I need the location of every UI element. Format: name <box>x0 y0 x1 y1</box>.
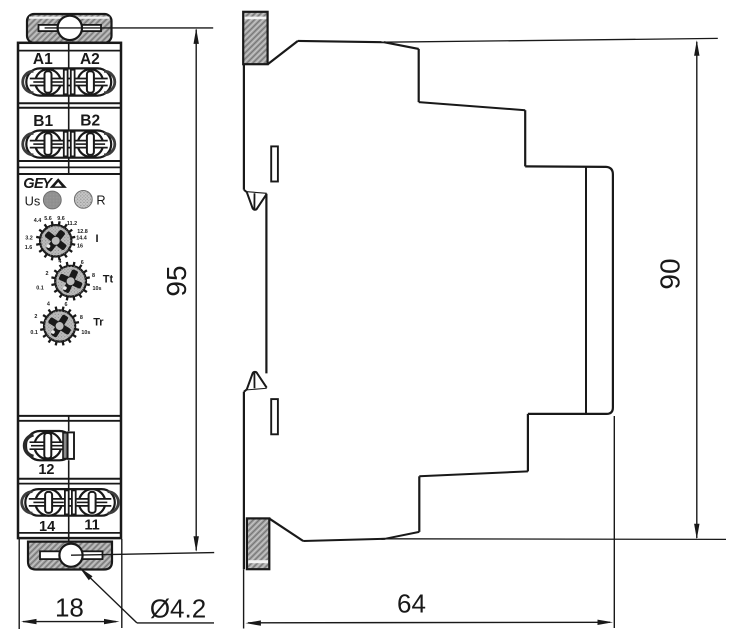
svg-text:9.6: 9.6 <box>57 216 65 222</box>
svg-text:10s: 10s <box>81 330 90 336</box>
svg-text:Y: Y <box>42 176 53 192</box>
svg-text:8: 8 <box>92 273 95 279</box>
svg-text:10s: 10s <box>93 286 102 292</box>
svg-text:12: 12 <box>38 462 54 478</box>
svg-text:R: R <box>96 193 105 208</box>
svg-text:0.1: 0.1 <box>30 330 38 336</box>
svg-text:14.4: 14.4 <box>76 236 87 242</box>
svg-text:5.6: 5.6 <box>44 216 52 222</box>
svg-text:A1: A1 <box>33 51 53 68</box>
svg-text:14: 14 <box>39 519 55 535</box>
svg-text:A2: A2 <box>80 51 100 68</box>
svg-text:6: 6 <box>65 302 68 308</box>
svg-text:B2: B2 <box>80 113 100 130</box>
svg-text:4.4: 4.4 <box>34 218 42 224</box>
svg-text:2: 2 <box>34 314 37 320</box>
svg-text:Tr: Tr <box>93 316 104 328</box>
svg-text:90: 90 <box>655 258 686 289</box>
svg-text:12.8: 12.8 <box>77 229 88 235</box>
svg-text:11: 11 <box>84 518 99 534</box>
svg-text:Ø4.2: Ø4.2 <box>150 594 206 624</box>
svg-text:64: 64 <box>397 589 426 619</box>
svg-text:4: 4 <box>47 301 50 307</box>
svg-text:16: 16 <box>77 244 83 250</box>
svg-text:0.1: 0.1 <box>36 286 44 292</box>
svg-text:Tt: Tt <box>103 274 114 286</box>
svg-text:8: 8 <box>80 315 83 321</box>
svg-text:95: 95 <box>161 265 192 296</box>
svg-text:4: 4 <box>59 259 62 265</box>
svg-text:Us: Us <box>25 193 41 208</box>
svg-text:11.2: 11.2 <box>67 221 77 227</box>
svg-text:1.6: 1.6 <box>25 245 33 251</box>
svg-text:18: 18 <box>55 593 84 623</box>
svg-text:6: 6 <box>81 260 84 266</box>
svg-text:2: 2 <box>46 271 49 277</box>
svg-text:I: I <box>95 233 98 245</box>
svg-text:3.2: 3.2 <box>25 236 33 242</box>
svg-text:B1: B1 <box>33 113 53 130</box>
